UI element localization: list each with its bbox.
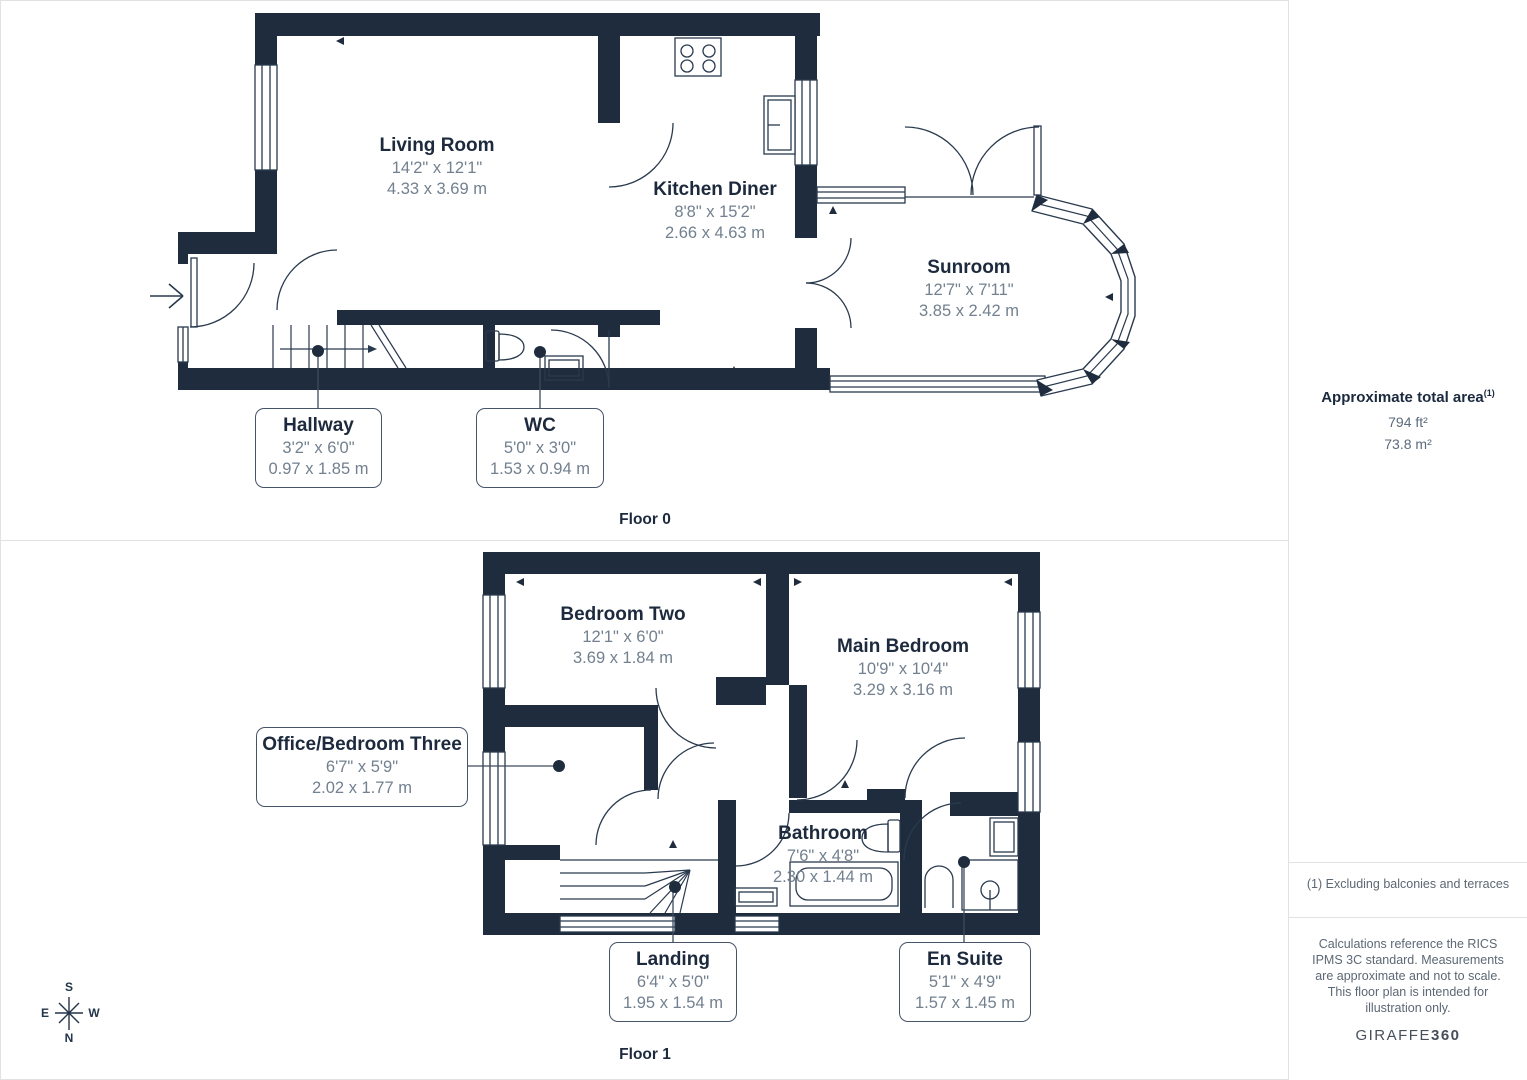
bathroom-sink-icon — [735, 888, 777, 906]
room-dim-metric: 2.66 x 4.63 m — [653, 223, 777, 244]
hob-icon — [675, 38, 721, 76]
room-dim-metric: 2.02 x 1.77 m — [261, 778, 463, 799]
room-name: Kitchen Diner — [653, 177, 777, 202]
room-dim-metric: 1.57 x 1.45 m — [904, 993, 1026, 1014]
ensuite-sink-icon — [990, 818, 1018, 856]
bay-window — [1032, 195, 1135, 396]
callout-wc: WC 5'0" x 3'0" 1.53 x 0.94 m — [476, 408, 604, 488]
compass-north-label: N — [65, 1031, 74, 1045]
room-name: Hallway — [260, 413, 377, 438]
room-dim-imperial: 3'2" x 6'0" — [260, 438, 377, 459]
room-dim-metric: 2.30 x 1.44 m — [773, 867, 873, 888]
room-dim-metric: 1.95 x 1.54 m — [614, 993, 732, 1014]
room-label-bathroom: Bathroom 7'6" x 4'8" 2.30 x 1.44 m — [773, 821, 873, 888]
room-dim-imperial: 10'9" x 10'4" — [837, 659, 969, 680]
room-dim-metric: 3.69 x 1.84 m — [560, 648, 685, 669]
room-label-sunroom: Sunroom 12'7" x 7'11" 3.85 x 2.42 m — [919, 255, 1019, 322]
total-area-title-text: Approximate total area — [1321, 389, 1484, 406]
area-footnote: (1) Excluding balconies and terraces — [1289, 877, 1527, 891]
kitchen-sink-icon — [764, 96, 795, 154]
room-dim-metric: 1.53 x 0.94 m — [481, 459, 599, 480]
room-dim-imperial: 6'4" x 5'0" — [614, 972, 732, 993]
room-name: Sunroom — [919, 255, 1019, 280]
room-label-kitchen-diner: Kitchen Diner 8'8" x 15'2" 2.66 x 4.63 m — [653, 177, 777, 244]
room-name: Office/Bedroom Three — [261, 732, 463, 757]
floor-1-caption: Floor 1 — [619, 1046, 671, 1064]
room-dim-imperial: 5'0" x 3'0" — [481, 438, 599, 459]
giraffe360-logo: GIRAFFE360 — [1289, 1027, 1527, 1044]
shower-icon — [962, 860, 1018, 910]
ensuite-toilet-icon — [925, 866, 953, 908]
sidebar-rule-bottom — [1289, 917, 1527, 918]
floor0-camera-dots — [312, 345, 546, 358]
room-name: Bedroom Two — [560, 602, 685, 627]
room-dim-imperial: 14'2" x 12'1" — [379, 158, 494, 179]
floorplan-page: Living Room 14'2" x 12'1" 4.33 x 3.69 m … — [0, 0, 1527, 1080]
room-label-main-bedroom: Main Bedroom 10'9" x 10'4" 3.29 x 3.16 m — [837, 634, 969, 701]
room-dim-imperial: 8'8" x 15'2" — [653, 202, 777, 223]
room-dim-imperial: 5'1" x 4'9" — [904, 972, 1026, 993]
callout-hallway: Hallway 3'2" x 6'0" 0.97 x 1.85 m — [255, 408, 382, 488]
room-dim-metric: 4.33 x 3.69 m — [379, 179, 494, 200]
floor-0-caption: Floor 0 — [619, 511, 671, 529]
brand-bold: 360 — [1431, 1027, 1461, 1044]
total-area-m: 73.8 m² — [1289, 436, 1527, 452]
room-name: Main Bedroom — [837, 634, 969, 659]
stairs-floor0 — [273, 325, 406, 368]
room-dim-imperial: 6'7" x 5'9" — [261, 757, 463, 778]
stairs-floor1 — [560, 860, 718, 913]
callout-landing: Landing 6'4" x 5'0" 1.95 x 1.54 m — [609, 942, 737, 1022]
room-dim-metric: 3.85 x 2.42 m — [919, 301, 1019, 322]
compass-west-label: W — [88, 1006, 99, 1020]
room-dim-imperial: 12'1" x 6'0" — [560, 627, 685, 648]
disclaimer-text: Calculations reference the RICS IPMS 3C … — [1308, 936, 1508, 1016]
room-label-living-room: Living Room 14'2" x 12'1" 4.33 x 3.69 m — [379, 133, 494, 200]
entrance-arrow — [150, 284, 183, 308]
floor-divider-line — [0, 540, 1288, 541]
brand-regular: GIRAFFE — [1355, 1027, 1431, 1044]
room-dim-metric: 0.97 x 1.85 m — [260, 459, 377, 480]
room-dim-imperial: 7'6" x 4'8" — [773, 846, 873, 867]
sidebar-rule-top — [1289, 862, 1527, 863]
room-name: Bathroom — [773, 821, 873, 846]
info-sidebar: Approximate total area(1) 794 ft² 73.8 m… — [1289, 0, 1527, 1080]
room-name: WC — [481, 413, 599, 438]
compass-south-label: S — [65, 980, 73, 994]
footnote-ref: (1) — [1484, 388, 1495, 398]
floor-0-plan — [0, 0, 1288, 540]
total-area-ft: 794 ft² — [1289, 414, 1527, 430]
callout-en-suite: En Suite 5'1" x 4'9" 1.57 x 1.45 m — [899, 942, 1031, 1022]
room-name: En Suite — [904, 947, 1026, 972]
room-name: Living Room — [379, 133, 494, 158]
compass-east-label: E — [41, 1006, 49, 1020]
room-label-bedroom-two: Bedroom Two 12'1" x 6'0" 3.69 x 1.84 m — [560, 602, 685, 669]
total-area-title: Approximate total area(1) — [1289, 388, 1527, 406]
room-dim-imperial: 12'7" x 7'11" — [919, 280, 1019, 301]
compass-icon — [55, 997, 83, 1030]
room-name: Landing — [614, 947, 732, 972]
callout-office-bedroom-three: Office/Bedroom Three 6'7" x 5'9" 2.02 x … — [256, 727, 468, 807]
room-dim-metric: 3.29 x 3.16 m — [837, 680, 969, 701]
